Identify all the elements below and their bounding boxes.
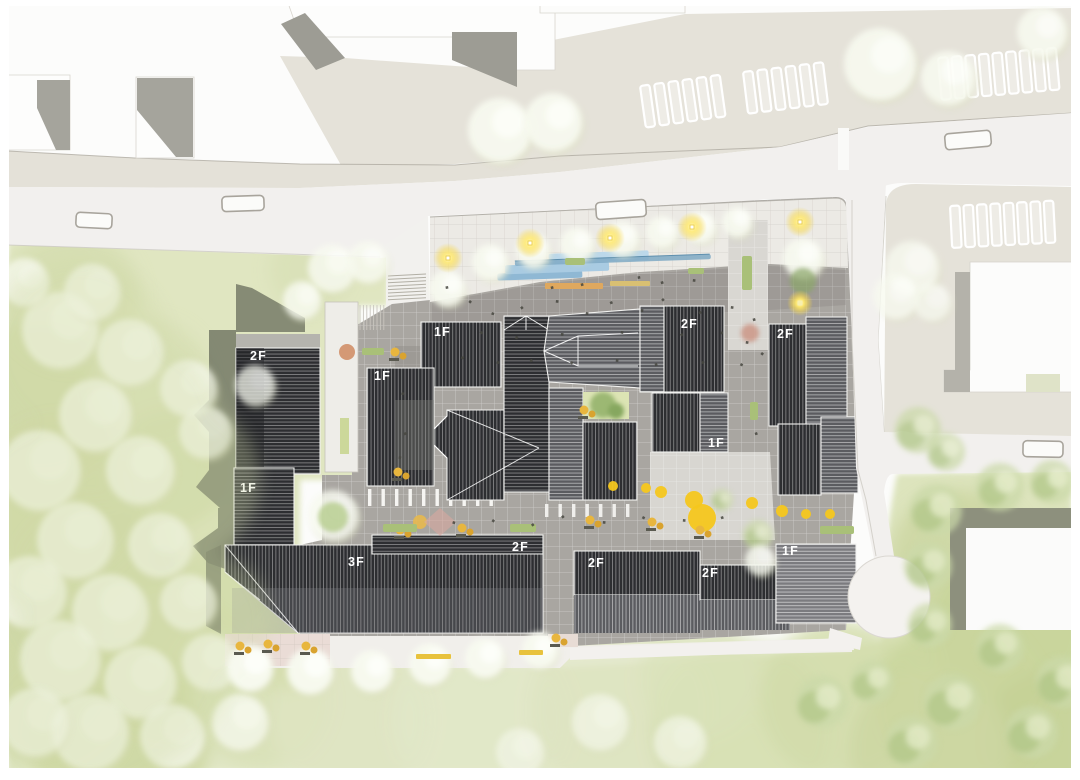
svg-text:2F: 2F (702, 566, 719, 580)
svg-text:1F: 1F (374, 369, 391, 383)
svg-text:2F: 2F (512, 540, 529, 554)
svg-text:2F: 2F (588, 556, 605, 570)
svg-text:2F: 2F (250, 349, 267, 363)
svg-text:1F: 1F (782, 544, 799, 558)
svg-text:3F: 3F (348, 555, 365, 569)
svg-text:1F: 1F (708, 436, 725, 450)
svg-text:2F: 2F (681, 317, 698, 331)
svg-text:1F: 1F (434, 325, 451, 339)
svg-text:2F: 2F (777, 327, 794, 341)
